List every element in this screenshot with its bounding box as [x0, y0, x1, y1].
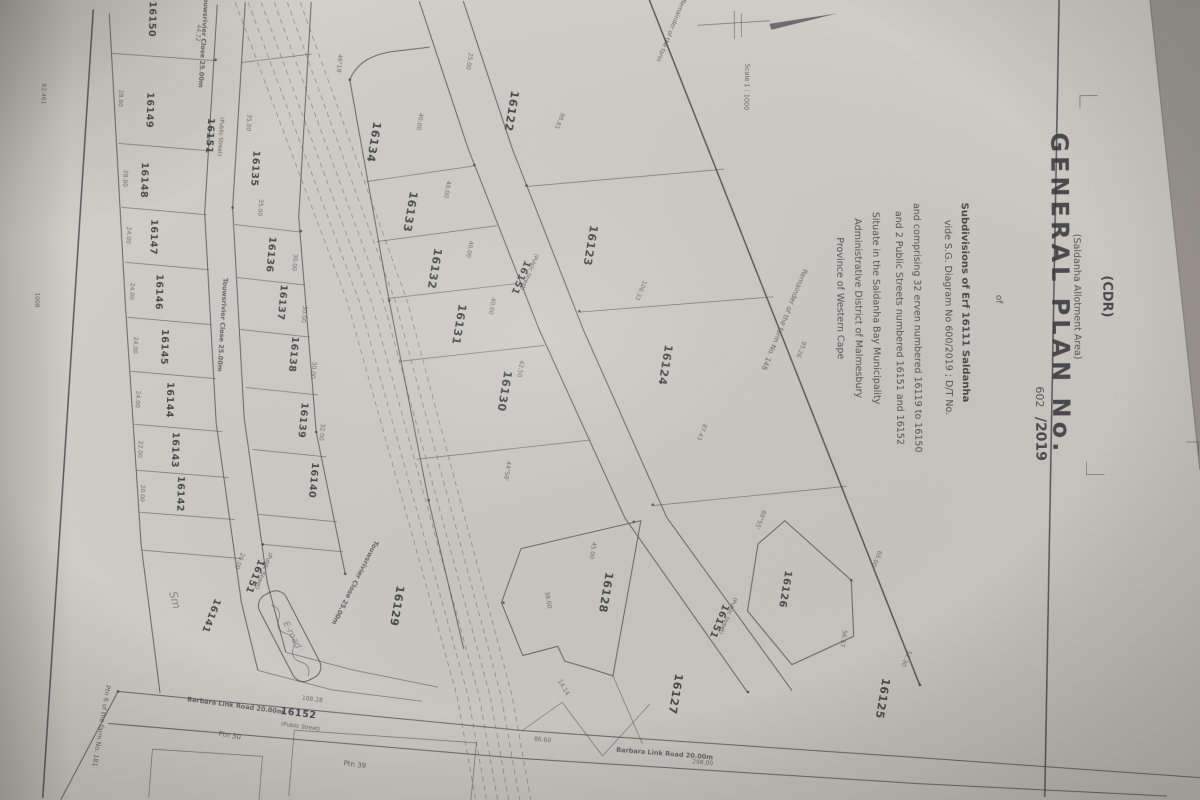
general-plan-photo: 1615016149161481614716146161451614416143… [0, 0, 1200, 800]
plan-canvas: 1615016149161481614716146161451614416143… [0, 0, 1200, 800]
photo-vignette [0, 0, 1200, 800]
